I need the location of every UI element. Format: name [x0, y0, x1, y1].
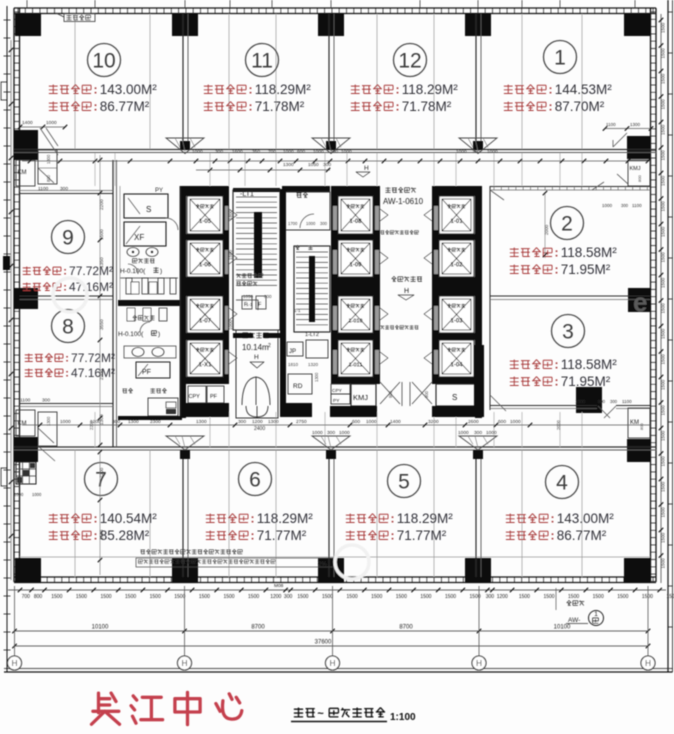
svg-text:1000: 1000 [228, 319, 233, 330]
svg-text:1500: 1500 [661, 558, 666, 569]
svg-text:1500: 1500 [661, 405, 666, 416]
svg-text::: : [551, 529, 555, 543]
svg-text:47.16M²: 47.16M² [71, 366, 115, 380]
svg-text:1-08: 1-08 [349, 219, 362, 225]
svg-text:H: H [404, 288, 409, 295]
svg-text:1000: 1000 [312, 430, 323, 436]
svg-text:2600: 2600 [468, 419, 479, 425]
svg-text:1400: 1400 [390, 419, 401, 425]
svg-text:AW-: AW- [568, 617, 580, 624]
svg-text:1: 1 [594, 611, 598, 618]
svg-text:1000: 1000 [575, 399, 586, 404]
svg-text::: : [65, 353, 69, 365]
svg-text:S: S [452, 393, 457, 402]
svg-text:1700: 1700 [288, 221, 298, 226]
svg-text:2300: 2300 [150, 419, 161, 425]
svg-text:300: 300 [320, 221, 328, 226]
svg-text:1200: 1200 [270, 594, 281, 600]
svg-text:1-02: 1-02 [450, 263, 463, 269]
svg-text:1500: 1500 [661, 456, 666, 467]
svg-text:1500: 1500 [661, 379, 666, 390]
svg-text::: : [94, 83, 98, 97]
svg-text::: : [555, 358, 559, 372]
svg-text:1800: 1800 [228, 209, 233, 220]
svg-text:1600: 1600 [232, 149, 243, 155]
svg-text:-LT1: -LT1 [240, 191, 254, 198]
svg-text:10100: 10100 [554, 625, 571, 631]
svg-text::: : [549, 83, 553, 97]
svg-text:KM: KM [18, 170, 27, 176]
svg-text:1000: 1000 [602, 203, 613, 208]
svg-text:300: 300 [621, 203, 629, 208]
svg-text:1300: 1300 [268, 419, 279, 425]
svg-text:800: 800 [598, 399, 606, 404]
svg-text:H-0.100(: H-0.100( [118, 331, 144, 338]
svg-text:1000: 1000 [510, 419, 521, 425]
svg-text:1350: 1350 [99, 257, 105, 268]
svg-text:1500: 1500 [371, 594, 382, 600]
svg-text:~: ~ [317, 708, 324, 720]
svg-text:1300: 1300 [283, 162, 294, 168]
svg-text:1000: 1000 [32, 492, 42, 497]
svg-text:1200: 1200 [252, 419, 263, 425]
svg-text:1500: 1500 [661, 354, 666, 365]
svg-text:1500: 1500 [347, 594, 358, 600]
svg-text:1-06: 1-06 [199, 263, 212, 269]
svg-text:77.72M²: 77.72M² [69, 264, 113, 278]
svg-text:300: 300 [474, 430, 482, 436]
svg-text:300: 300 [330, 149, 338, 155]
svg-text:1000: 1000 [486, 430, 497, 436]
svg-text:1500: 1500 [661, 99, 666, 110]
svg-text:85.28M²: 85.28M² [100, 528, 150, 543]
svg-text:1500: 1500 [420, 594, 431, 600]
svg-text:1500: 1500 [661, 252, 666, 263]
svg-text::: : [391, 512, 395, 526]
svg-text:1500: 1500 [661, 150, 666, 161]
svg-text:1500: 1500 [666, 594, 674, 600]
svg-text:300: 300 [284, 594, 293, 600]
svg-text:RD: RD [293, 383, 303, 390]
svg-text::: : [249, 83, 253, 97]
svg-text:KM: KM [18, 421, 27, 427]
svg-text:118.29M²: 118.29M² [255, 82, 312, 97]
svg-text:300: 300 [327, 430, 335, 436]
svg-text:KMJ: KMJ [353, 393, 368, 402]
svg-text:3200: 3200 [428, 419, 439, 425]
svg-text:1500: 1500 [568, 594, 579, 600]
svg-text::: : [555, 246, 559, 260]
svg-text:1300: 1300 [46, 154, 51, 164]
svg-text:1500: 1500 [99, 529, 104, 540]
svg-text:1-1: 1-1 [294, 308, 301, 313]
svg-text:1500: 1500 [661, 430, 666, 441]
svg-text:1300: 1300 [46, 416, 51, 426]
svg-text:2: 2 [268, 343, 271, 349]
svg-text:4: 4 [556, 472, 568, 495]
svg-text:1500: 1500 [396, 594, 407, 600]
svg-text:600: 600 [264, 294, 272, 299]
svg-text:1500: 1500 [228, 249, 233, 260]
svg-text:1-1: 1-1 [246, 302, 253, 307]
svg-text::: : [63, 266, 67, 278]
svg-text:KMJ: KMJ [630, 166, 641, 172]
svg-text:1-010: 1-010 [348, 319, 362, 325]
svg-text:11: 11 [251, 50, 273, 73]
svg-text:118.29M²: 118.29M² [402, 82, 459, 97]
svg-text:900: 900 [388, 390, 393, 398]
svg-text:10: 10 [92, 50, 115, 73]
svg-text:1000: 1000 [46, 120, 57, 126]
svg-text:PY: PY [333, 398, 340, 404]
svg-text:1500: 1500 [223, 594, 234, 600]
svg-text:e: e [633, 287, 647, 317]
svg-text:71.77M²: 71.77M² [257, 528, 307, 543]
svg-text:700: 700 [268, 149, 276, 155]
svg-text:PY: PY [155, 188, 163, 194]
svg-text:1500: 1500 [150, 594, 161, 600]
svg-text:1810: 1810 [288, 362, 299, 367]
svg-text:12: 12 [398, 50, 421, 73]
svg-text:1200: 1200 [497, 594, 508, 600]
svg-text:1300: 1300 [314, 372, 319, 382]
svg-text:1500: 1500 [661, 22, 666, 33]
svg-text:1000: 1000 [456, 149, 467, 155]
svg-text:1000: 1000 [487, 149, 498, 155]
svg-text:1: 1 [554, 47, 566, 70]
svg-text:1100: 1100 [38, 186, 49, 192]
svg-text:S: S [146, 205, 151, 214]
svg-text:118.29M²: 118.29M² [397, 511, 454, 526]
svg-text:2200: 2200 [89, 420, 94, 430]
svg-text:2%: 2% [318, 562, 327, 568]
svg-text:1500: 1500 [100, 594, 111, 600]
svg-text:86.77M²: 86.77M² [557, 528, 607, 543]
svg-text::: : [94, 512, 98, 526]
svg-text:1000: 1000 [14, 492, 24, 497]
svg-text:600: 600 [498, 419, 506, 425]
svg-text:1500: 1500 [174, 594, 185, 600]
svg-text::: : [251, 529, 255, 543]
svg-text:H: H [476, 659, 482, 668]
svg-text:1500: 1500 [661, 277, 666, 288]
svg-text:10100: 10100 [92, 625, 109, 631]
svg-text:1-011: 1-011 [349, 363, 363, 369]
svg-text:): ) [160, 268, 162, 275]
svg-text:118.58M²: 118.58M² [561, 245, 618, 260]
svg-text:1100: 1100 [20, 398, 31, 404]
svg-text:2200: 2200 [99, 199, 105, 210]
svg-text:300: 300 [215, 149, 223, 155]
svg-text:118.58M²: 118.58M² [561, 357, 618, 372]
svg-text:71.78M²: 71.78M² [402, 99, 452, 114]
svg-text:1500: 1500 [661, 507, 666, 518]
svg-text:3550: 3550 [99, 319, 105, 330]
svg-text:1500: 1500 [248, 594, 259, 600]
svg-text:300: 300 [472, 149, 480, 155]
svg-text:600: 600 [297, 149, 305, 155]
svg-text:1100: 1100 [632, 203, 642, 208]
svg-text:1500: 1500 [322, 594, 333, 600]
svg-text:1500: 1500 [543, 594, 554, 600]
svg-text:1500: 1500 [661, 226, 666, 237]
svg-text:1500: 1500 [125, 594, 136, 600]
svg-text:300: 300 [60, 186, 68, 192]
svg-text:1500: 1500 [661, 175, 666, 186]
svg-text:1050: 1050 [243, 294, 254, 299]
svg-text::: : [63, 282, 67, 294]
svg-text:71.78M²: 71.78M² [255, 99, 305, 114]
svg-text:9: 9 [62, 227, 74, 250]
svg-text:47.16M²: 47.16M² [69, 280, 113, 294]
svg-text:1000: 1000 [60, 419, 71, 425]
svg-text:1500: 1500 [297, 594, 308, 600]
svg-text:600: 600 [352, 419, 360, 425]
svg-text::: : [555, 375, 559, 389]
svg-text:): ) [158, 331, 160, 338]
svg-text:2000: 2000 [544, 224, 549, 235]
svg-text:300: 300 [610, 399, 618, 404]
svg-text:H: H [254, 354, 259, 361]
svg-text:1500: 1500 [661, 48, 666, 59]
svg-text:1-X1: 1-X1 [199, 363, 212, 369]
svg-text::: : [549, 100, 553, 114]
svg-text:PF: PF [210, 394, 218, 400]
svg-text:10.14m: 10.14m [242, 343, 269, 352]
svg-text:8700: 8700 [399, 625, 413, 631]
svg-text:1000: 1000 [192, 149, 203, 155]
svg-text:1500: 1500 [661, 124, 666, 135]
svg-text:71.95M²: 71.95M² [561, 374, 611, 389]
svg-text:300: 300 [112, 419, 120, 425]
svg-text:1300: 1300 [630, 122, 641, 127]
svg-text:8: 8 [62, 316, 74, 339]
svg-text:1500: 1500 [51, 594, 62, 600]
svg-text:H: H [12, 659, 18, 668]
svg-text:77.72M²: 77.72M² [71, 351, 115, 365]
svg-text:1-01: 1-01 [450, 219, 463, 225]
svg-text::: : [251, 512, 255, 526]
svg-text::: : [396, 100, 400, 114]
svg-text:1500: 1500 [593, 594, 604, 600]
svg-text:1000: 1000 [366, 419, 377, 425]
svg-text:1500: 1500 [661, 328, 666, 339]
svg-text:300: 300 [323, 162, 331, 168]
svg-text::: : [396, 83, 400, 97]
svg-text:87.70M²: 87.70M² [555, 99, 605, 114]
svg-text:1500: 1500 [661, 532, 666, 543]
svg-text:1100: 1100 [622, 399, 632, 404]
svg-text:800: 800 [637, 175, 642, 182]
svg-text:XF: XF [134, 233, 144, 242]
svg-text:1500: 1500 [661, 481, 666, 492]
svg-text:300: 300 [486, 594, 495, 600]
svg-text:1000: 1000 [341, 149, 352, 155]
svg-text:CPY: CPY [189, 394, 201, 400]
svg-text::: : [94, 529, 98, 543]
svg-text:1100: 1100 [606, 122, 616, 127]
svg-text:300: 300 [42, 398, 50, 404]
svg-text:1320: 1320 [308, 362, 319, 367]
svg-text::: : [555, 263, 559, 277]
svg-text:118.29M²: 118.29M² [257, 511, 314, 526]
svg-text:8700: 8700 [251, 625, 265, 631]
svg-text:1500: 1500 [661, 201, 666, 212]
svg-text:1-07: 1-07 [199, 319, 212, 325]
svg-text:700: 700 [22, 594, 31, 600]
svg-text:350: 350 [252, 149, 260, 155]
svg-text:144.53M²: 144.53M² [555, 82, 613, 97]
svg-text:H: H [330, 659, 336, 668]
svg-text:1-05: 1-05 [199, 219, 212, 225]
svg-text:1500: 1500 [642, 594, 653, 600]
svg-text::: : [249, 100, 253, 114]
svg-text:1500: 1500 [519, 594, 530, 600]
svg-text:1000: 1000 [313, 149, 324, 155]
svg-text:37600: 37600 [315, 640, 332, 646]
svg-text:800: 800 [46, 174, 51, 182]
svg-text:1500: 1500 [199, 594, 210, 600]
svg-text:H: H [645, 659, 651, 668]
svg-text:140.54M²: 140.54M² [100, 511, 158, 526]
svg-text:1300: 1300 [128, 419, 139, 425]
svg-text:143.00M²: 143.00M² [557, 511, 615, 526]
svg-text::: : [94, 100, 98, 114]
svg-text:5: 5 [398, 471, 410, 494]
svg-text:86.77M²: 86.77M² [100, 99, 150, 114]
svg-text:2750: 2750 [296, 419, 307, 425]
svg-text:2200: 2200 [99, 369, 105, 380]
svg-text:2: 2 [561, 213, 573, 236]
svg-text:6: 6 [249, 469, 261, 492]
svg-text:1-04: 1-04 [450, 363, 463, 369]
svg-text:H: H [364, 165, 369, 172]
svg-text:300: 300 [238, 419, 246, 425]
svg-text:JP: JP [289, 349, 296, 355]
svg-text:71.95M²: 71.95M² [561, 262, 611, 277]
svg-text:2400: 2400 [254, 426, 265, 432]
svg-text:143.00M²: 143.00M² [100, 82, 158, 97]
svg-text::: : [65, 368, 69, 380]
svg-text:1000: 1000 [306, 221, 316, 226]
svg-text:1-LT2: 1-LT2 [305, 332, 319, 338]
svg-text:1500: 1500 [661, 303, 666, 314]
svg-text:1500: 1500 [617, 594, 628, 600]
svg-text:CPY: CPY [332, 388, 343, 394]
svg-text:800: 800 [34, 594, 43, 600]
svg-text:1000: 1000 [283, 149, 294, 155]
svg-text:900: 900 [424, 390, 429, 398]
svg-text:1000: 1000 [458, 430, 469, 436]
svg-text:2200: 2200 [99, 467, 104, 478]
svg-text:800: 800 [639, 423, 644, 430]
svg-text::: : [391, 529, 395, 543]
svg-text:1:100: 1:100 [390, 712, 416, 723]
svg-text:1-03: 1-03 [450, 319, 463, 325]
svg-text:1500: 1500 [661, 73, 666, 84]
svg-text:1000: 1000 [339, 430, 350, 436]
svg-text:M08: M08 [274, 583, 284, 589]
svg-text:H: H [182, 659, 188, 668]
svg-text:1400: 1400 [22, 120, 33, 126]
svg-text:1300: 1300 [196, 419, 207, 425]
svg-text::: : [551, 512, 555, 526]
svg-text:1500: 1500 [445, 594, 456, 600]
svg-text:H-0.100(: H-0.100( [120, 268, 146, 275]
svg-text:1-09: 1-09 [349, 263, 362, 269]
svg-text:3: 3 [562, 321, 574, 344]
svg-text:71.77M²: 71.77M² [397, 528, 447, 543]
svg-text:1500: 1500 [76, 594, 87, 600]
svg-text:AW-1-0610: AW-1-0610 [383, 197, 424, 206]
